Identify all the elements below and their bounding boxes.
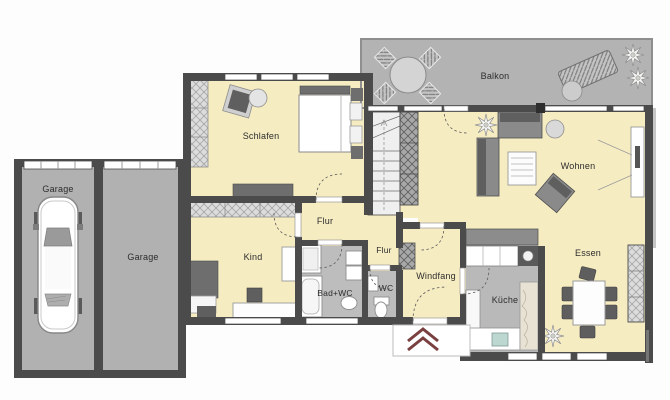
watermark-mark bbox=[646, 330, 649, 362]
room-label-garage-left: Garage bbox=[42, 184, 73, 194]
room-label-flur-upper: Flur bbox=[317, 216, 333, 226]
room-label-windfang: Windfang bbox=[416, 271, 456, 281]
room-label-wohnen: Wohnen bbox=[561, 161, 596, 171]
room-label-bad-wc: Bad+WC bbox=[317, 288, 352, 298]
car-icon bbox=[33, 197, 83, 333]
room-label-flur-lower: Flur bbox=[376, 245, 391, 255]
room-label-kind: Kind bbox=[244, 252, 263, 262]
floor-plan: Garage Garage Schlafen Balkon Wohnen Flu… bbox=[0, 0, 670, 400]
hall-wardrobe bbox=[400, 112, 418, 205]
room-label-wc: WC bbox=[379, 283, 394, 293]
room-label-schlafen: Schlafen bbox=[243, 131, 280, 141]
room-label-kueche: Küche bbox=[492, 295, 519, 305]
room-label-garage-right: Garage bbox=[127, 252, 158, 262]
entrance-porch bbox=[393, 325, 470, 356]
floor-plan-drawing bbox=[0, 0, 670, 400]
room-label-essen: Essen bbox=[575, 248, 601, 258]
room-label-balkon: Balkon bbox=[481, 71, 510, 81]
